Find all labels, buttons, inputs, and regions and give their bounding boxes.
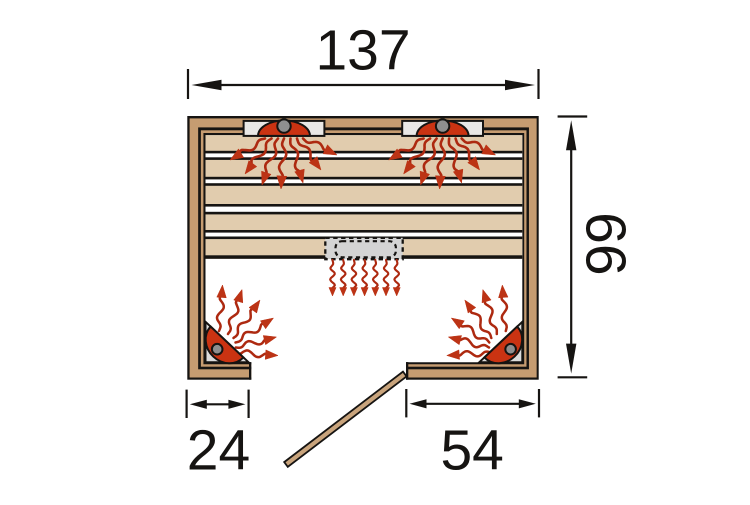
svg-text:24: 24 [187, 419, 250, 483]
svg-text:99: 99 [574, 212, 638, 275]
svg-text:137: 137 [315, 19, 410, 83]
svg-text:54: 54 [440, 419, 503, 483]
